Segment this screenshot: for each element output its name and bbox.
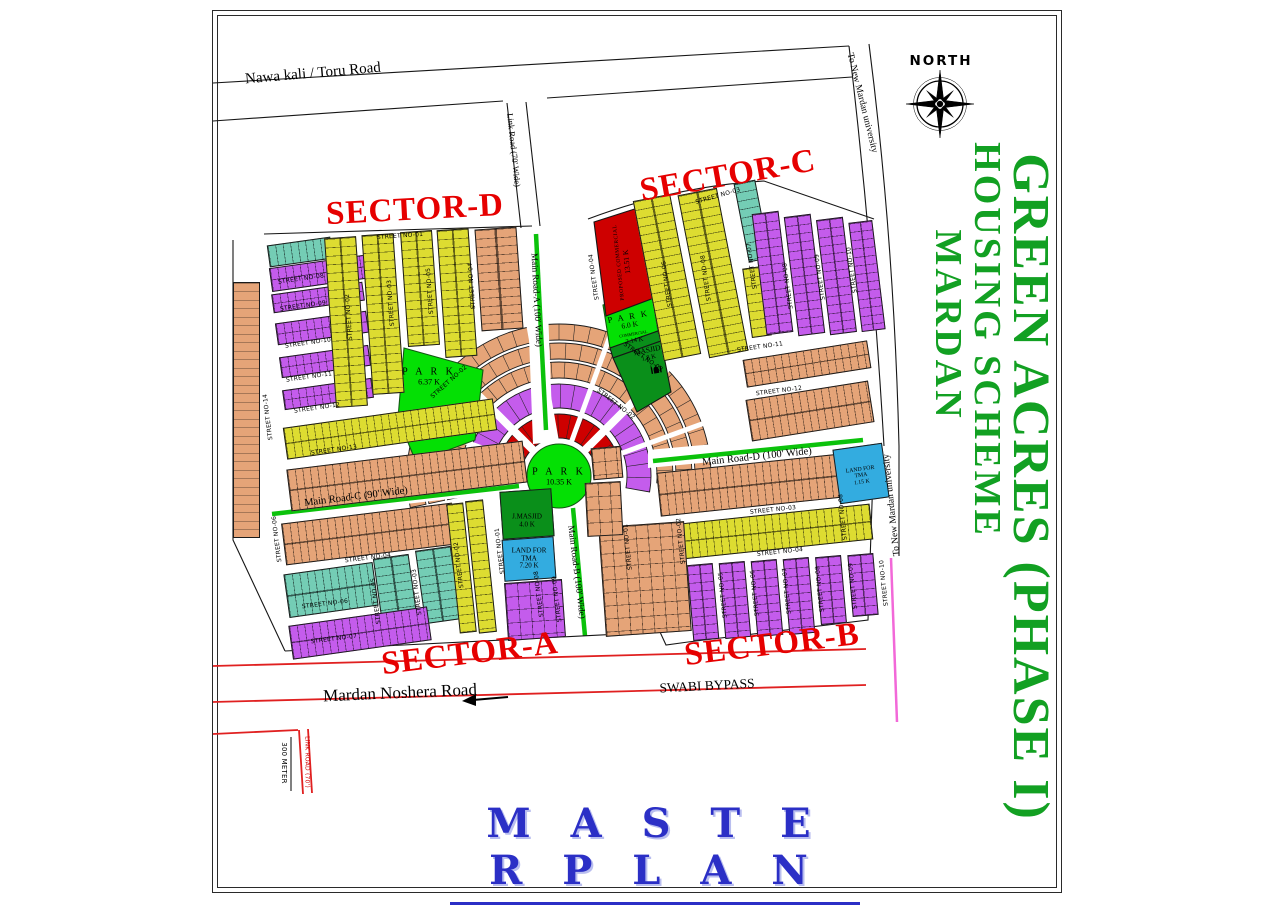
tma-area: 7.20 K (512, 563, 547, 571)
central-park-label: P A R K 10.35 K (532, 467, 586, 486)
scheme-boundary (233, 240, 285, 651)
nawa-kali-road-line (547, 77, 852, 98)
tma-b-label: LAND FOR TMA 1.15 K (845, 465, 876, 488)
park-area: 10.35 K (532, 478, 586, 487)
tma-a-label: LAND FOR TMA 7.20 K (512, 548, 547, 571)
nawa-kali-road-line (213, 101, 503, 121)
direction-arrow (473, 697, 508, 700)
boundary-pink-line (891, 558, 897, 722)
university-road-line (849, 46, 884, 446)
scheme-map-graphics (0, 0, 1280, 905)
north-label: NORTH (909, 53, 972, 69)
link-road-line (507, 103, 521, 228)
master-plan-page: STREET NO-01STREET NO-08STREET NO-09STRE… (0, 0, 1280, 905)
scheme-title-line2: HOUSING SCHEME (965, 120, 1009, 560)
jamia-masjid-icon (508, 496, 520, 506)
jamia-masjid-label: J.MASJID 4.0 K (512, 513, 542, 528)
nawa-kali-road-line (213, 46, 849, 83)
scheme-title-line1: GREEN ACRES (PHASE I) (1000, 97, 1060, 877)
master-plan-title: M A S T E R P L A N (450, 800, 860, 905)
link-road-line (526, 102, 540, 226)
masjid-area: 4.0 K (512, 521, 542, 529)
scheme-boundary (264, 226, 532, 234)
scheme-title-line3: MARDAN (926, 220, 970, 430)
compass-rose-icon (906, 70, 974, 138)
park-area: 6.37 K (402, 378, 456, 387)
park-d-label: P A R K 6.37 K (402, 367, 456, 386)
tma-stamp-icon (865, 450, 873, 458)
bypass-road-lines (213, 649, 866, 794)
